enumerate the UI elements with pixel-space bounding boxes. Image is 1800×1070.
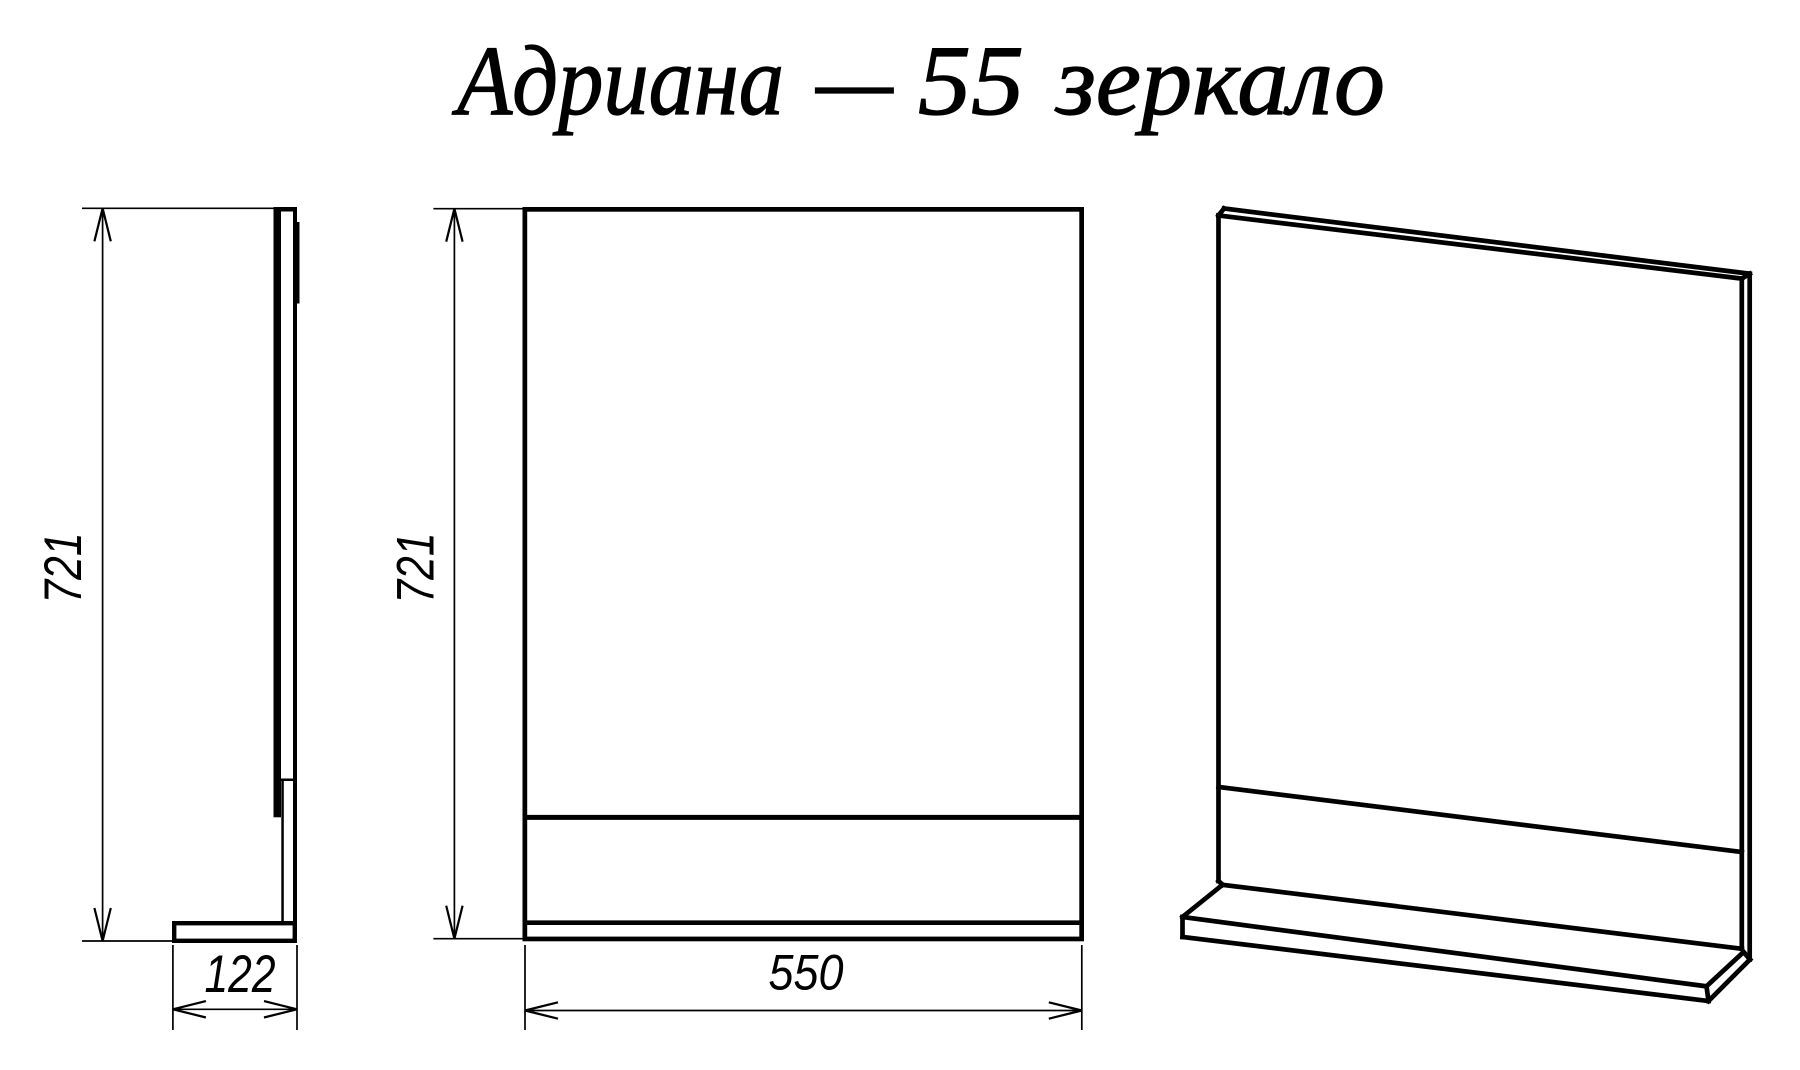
svg-text:721: 721	[34, 533, 93, 604]
svg-text:550: 550	[769, 945, 844, 1001]
svg-text:—: —	[815, 25, 894, 136]
svg-text:122: 122	[205, 945, 276, 1004]
svg-text:зеркало: зеркало	[1054, 25, 1385, 136]
svg-text:721: 721	[387, 533, 446, 604]
svg-text:55: 55	[918, 25, 1024, 136]
svg-text:Адриана: Адриана	[452, 25, 784, 136]
